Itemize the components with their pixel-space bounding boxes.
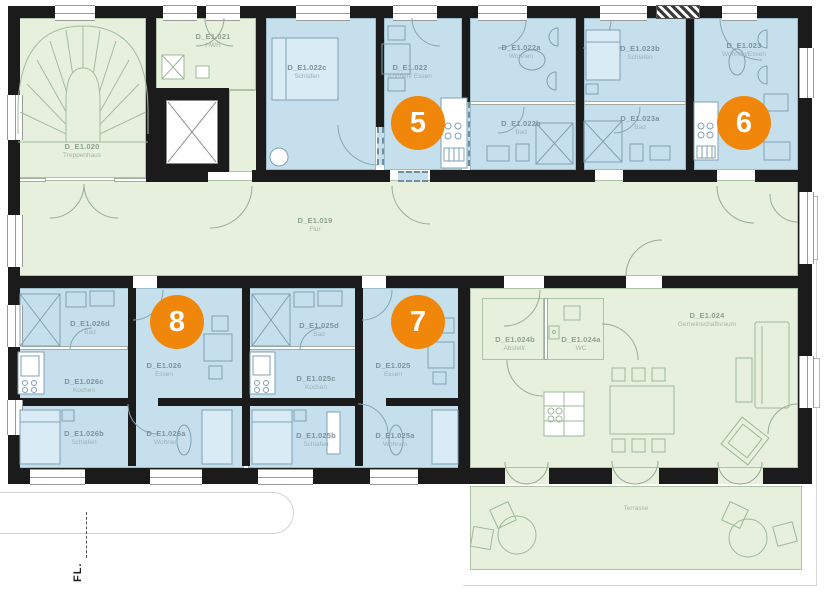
wall: [157, 276, 362, 288]
site-path-outline: [0, 492, 294, 534]
window: [7, 215, 23, 267]
wall: [430, 170, 595, 182]
unit-badge-6[interactable]: 6: [717, 96, 771, 150]
room-D_E1.024b: [482, 298, 544, 360]
wall: [544, 276, 626, 288]
window: [799, 48, 814, 98]
partition: [248, 346, 356, 350]
lintel-hatch: [656, 5, 700, 19]
partition: [544, 298, 548, 360]
wall: [755, 170, 798, 182]
dashed-opening: [463, 102, 470, 166]
wall: [256, 6, 266, 170]
terrace-door-opening: [505, 468, 549, 484]
wall: [623, 170, 717, 182]
dashed-opening: [377, 127, 384, 165]
window: [722, 5, 757, 21]
wall: [458, 288, 470, 468]
wall: [248, 398, 358, 406]
wall: [158, 398, 244, 406]
room-D_E1.023b: [584, 18, 686, 103]
wall: [16, 276, 133, 288]
wall: [376, 18, 384, 127]
room-D_E1.023a: [584, 103, 686, 170]
window: [206, 5, 240, 21]
room-D_E1.021-strip: [229, 90, 258, 172]
room-D_E1.022a: [470, 18, 576, 103]
floor-plan: D_E1.020 Treppenhaus D_E1.021 HWR D_E1.0…: [0, 0, 824, 596]
wall: [128, 288, 136, 466]
terrace-door-opening: [612, 468, 659, 484]
window: [7, 305, 23, 347]
dashed-opening: [398, 171, 428, 182]
window: [393, 5, 437, 21]
unit-badge-7[interactable]: 7: [391, 295, 445, 349]
wall: [686, 6, 694, 170]
terrace: [470, 486, 802, 570]
wall: [355, 288, 363, 466]
site-boundary-line: [463, 585, 817, 586]
fl-dash-line: [86, 512, 87, 558]
wall: [16, 398, 130, 406]
wall: [662, 276, 798, 288]
window: [296, 5, 350, 21]
room-D_E1.019: [16, 180, 798, 276]
room-D_E1.022b: [470, 103, 576, 170]
unit-badge-5[interactable]: 5: [391, 96, 445, 150]
wall: [462, 6, 470, 102]
window: [478, 5, 527, 21]
room-D_E1.024a: [546, 298, 604, 360]
site-boundary-line: [816, 252, 817, 585]
elevator-icon: [166, 100, 218, 164]
fl-annotation: FL.: [72, 542, 84, 582]
room-D_E1.021: [156, 18, 256, 90]
partition: [584, 101, 686, 105]
partition: [16, 178, 46, 182]
partition: [16, 346, 128, 350]
partition: [114, 178, 148, 182]
unit-badge-8[interactable]: 8: [150, 295, 204, 349]
partition: [470, 101, 576, 105]
window: [258, 469, 313, 485]
window: [799, 192, 814, 264]
window: [163, 5, 197, 21]
room-D_E1.022c: [266, 18, 376, 170]
window: [799, 356, 814, 408]
window: [150, 469, 202, 485]
window: [7, 400, 23, 435]
window: [7, 95, 23, 140]
window: [55, 5, 95, 21]
wall: [242, 288, 250, 466]
wall: [576, 6, 584, 170]
window: [30, 469, 85, 485]
terrace-door-opening: [718, 468, 763, 484]
window: [370, 469, 418, 485]
window: [600, 5, 647, 21]
wall: [386, 398, 460, 406]
wall: [252, 170, 390, 182]
wall: [386, 276, 504, 288]
room-D_E1.020: [16, 18, 146, 178]
